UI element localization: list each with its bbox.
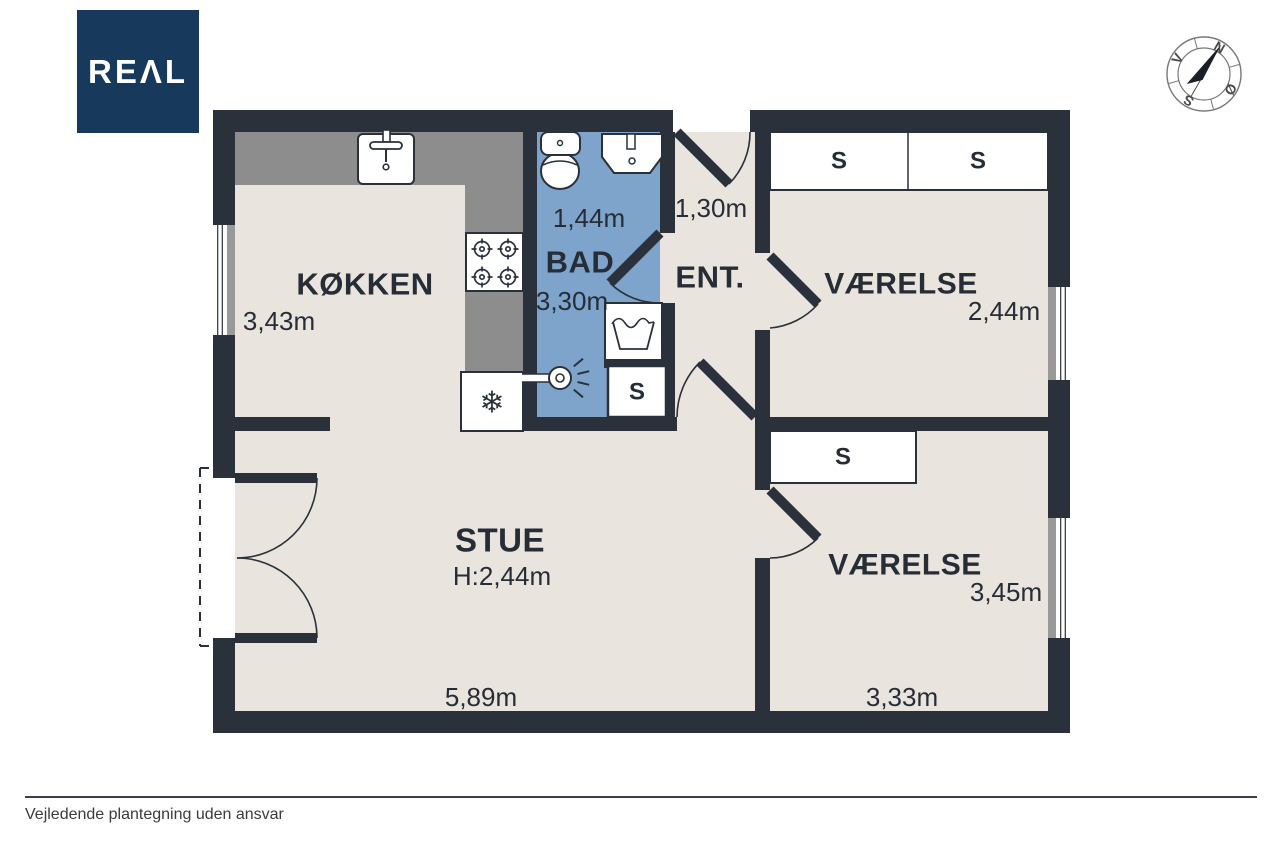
window-kitchen (213, 225, 235, 335)
dim-vaerelse-top-width: 2,44m (968, 296, 1040, 326)
closet-label-top-1: S (831, 148, 847, 175)
wall-center-a (755, 132, 770, 253)
kitchen-sink-icon (358, 130, 414, 184)
balcony-dashed-outline (200, 468, 235, 646)
wall-mid-horizontal (523, 417, 677, 431)
wall-left-a (213, 110, 235, 225)
wall-center-b (755, 330, 770, 490)
stove-icon (466, 233, 523, 291)
dim-bad-length: 3,30m (536, 286, 608, 316)
dim-bad-width: 1,44m (553, 203, 625, 233)
floorplan-drawing: ❄ (0, 0, 1280, 853)
dim-kokken-width: 3,43m (243, 306, 315, 336)
wall-right-b (1048, 380, 1070, 518)
closet-bedroom-top (770, 132, 1048, 190)
wall-top-right (750, 110, 1070, 132)
room-label-kokken: KØKKEN (296, 267, 433, 302)
room-label-ent: ENT. (675, 260, 744, 295)
toilet-icon (541, 132, 580, 189)
room-label-vaerelse-bottom: VÆRELSE (828, 549, 982, 582)
dim-stue-ceiling-height: H:2,44m (453, 561, 551, 591)
dim-stue-length: 5,89m (445, 682, 517, 712)
room-label-stue: STUE (455, 522, 545, 559)
bath-sink-icon (602, 134, 662, 173)
compass-rose: N Ø S V (1167, 37, 1241, 111)
dim-vaerelse-bottom-length: 3,33m (866, 682, 938, 712)
washing-machine-icon (605, 303, 662, 360)
closet-label-top-2: S (970, 148, 986, 175)
fridge-freezer-icon: ❄ (461, 372, 523, 431)
closet-label-bath: S (629, 379, 645, 406)
window-bedroom-top (1048, 287, 1070, 380)
wall-left-c (213, 638, 235, 733)
dim-ent-width: 1,30m (675, 193, 747, 223)
footer-disclaimer: Vejledende plantegning uden ansvar (25, 806, 284, 824)
wall-bath-left (523, 132, 537, 430)
wall-right-c (1048, 638, 1070, 733)
wall-top-left (213, 110, 673, 132)
wall-right-a (1048, 110, 1070, 287)
wall-bedroom-divider (770, 417, 1048, 431)
freezer-snowflake-icon: ❄ (479, 387, 504, 420)
wall-kitchen-stub (235, 417, 330, 431)
room-label-bad: BAD (546, 245, 615, 280)
wall-left-b (213, 335, 235, 478)
dim-vaerelse-bottom-width: 3,45m (970, 577, 1042, 607)
wall-bottom (213, 711, 1070, 733)
wall-center-c (755, 558, 770, 711)
closet-label-bottom: S (835, 444, 851, 471)
room-label-vaerelse-top: VÆRELSE (824, 268, 978, 301)
footer-divider (25, 796, 1257, 798)
floorplan-page: REΛL (0, 0, 1280, 853)
window-bedroom-bottom (1048, 518, 1070, 638)
